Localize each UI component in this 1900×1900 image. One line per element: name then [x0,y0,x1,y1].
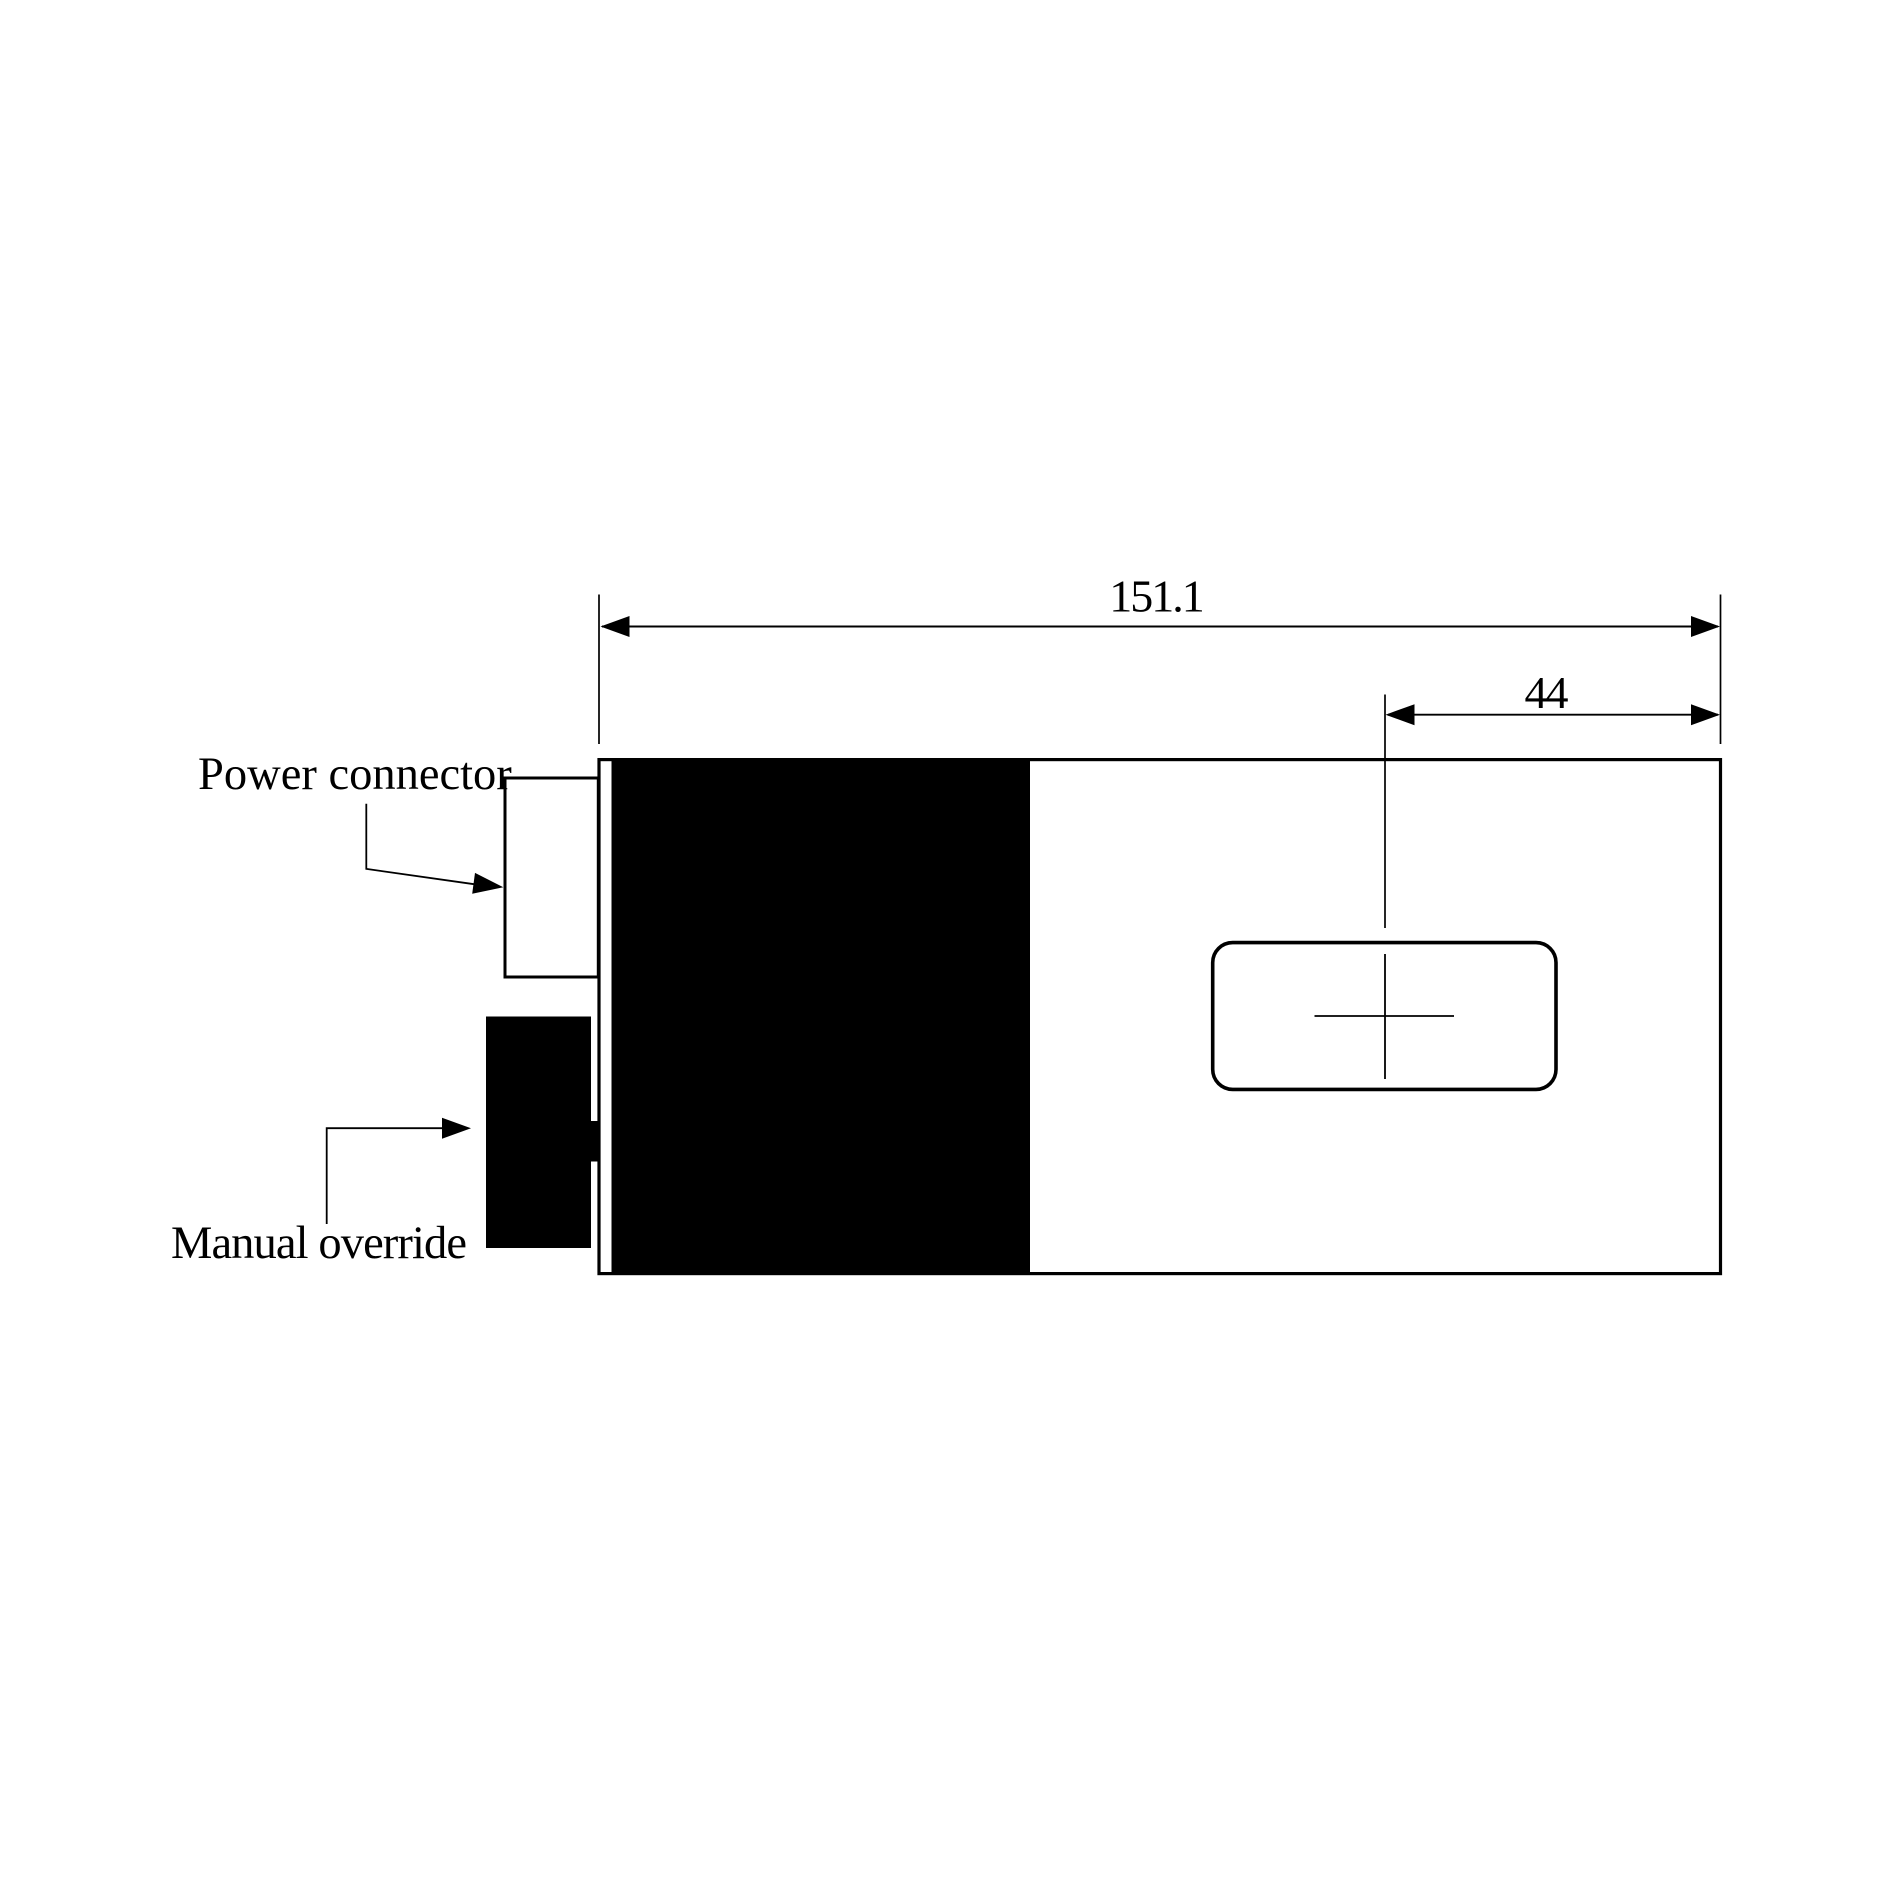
svg-text:44: 44 [1525,667,1569,718]
svg-text:Power connector: Power connector [198,749,512,800]
svg-text:Manual override: Manual override [171,1218,466,1269]
svg-text:151.1: 151.1 [1109,571,1203,622]
